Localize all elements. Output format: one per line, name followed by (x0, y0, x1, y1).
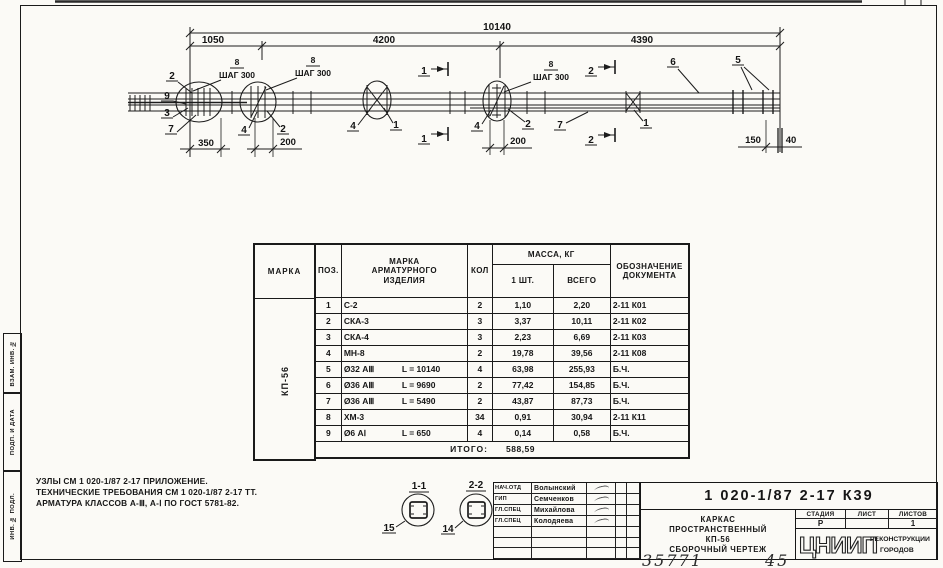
signature-empty-cell (616, 516, 627, 527)
stamp-label: ПОДП. И ДАТА (10, 409, 16, 455)
spec-cell-item: СКА-3 (341, 314, 467, 330)
spec-cell-doc: 2-11 К08 (610, 346, 689, 362)
spec-cell-doc: Б.Ч. (610, 378, 689, 394)
stamp-vzam-inv: ВЗАМ. ИНВ. № (3, 333, 22, 394)
signature-row (494, 538, 640, 549)
spec-cell-poz: 3 (315, 330, 341, 346)
table-row: 3СКА-432,236,692-11 К03 (315, 330, 689, 346)
spec-cell-mass-total: 39,56 (553, 346, 610, 362)
signature-name: Михайлова (532, 505, 587, 516)
table-row: 4МН-8219,7839,562-11 К08 (315, 346, 689, 362)
spec-cell-qty: 2 (467, 394, 492, 410)
item-length: L = 5490 (402, 396, 436, 406)
spec-cell-poz: 7 (315, 394, 341, 410)
item-length: L = 9690 (402, 380, 436, 390)
spec-cell-poz: 8 (315, 410, 341, 426)
signature-row (494, 527, 640, 538)
spec-cell-qty: 2 (467, 346, 492, 362)
spec-cell-mass-total: 87,73 (553, 394, 610, 410)
item-length: L = 10140 (402, 364, 440, 374)
specification-table: ПОЗ. МАРКА АРМАТУРНОГО ИЗДЕЛИЯ КОЛ МАССА… (314, 243, 690, 459)
spec-header-total: ВСЕГО (553, 265, 610, 298)
table-row: 2СКА-333,3710,112-11 К02 (315, 314, 689, 330)
signature-role: НАЧ.ОТД (494, 483, 532, 494)
spec-cell-item: Ø36 АⅢL = 9690 (341, 378, 467, 394)
spec-cell-poz: 2 (315, 314, 341, 330)
spec-cell-poz: 6 (315, 378, 341, 394)
signature-empty-cell (627, 527, 640, 538)
signature-empty-cell (627, 548, 640, 559)
signature-scribble (593, 506, 610, 516)
spec-header-mass: МАССА, КГ (492, 244, 610, 265)
signature-role (494, 538, 532, 549)
spec-cell-poz: 5 (315, 362, 341, 378)
spec-cell-item: Ø36 АⅢL = 5490 (341, 394, 467, 410)
spec-total-value: 588,59 (488, 445, 535, 455)
title-line: КАРКАС (700, 515, 735, 525)
organization-logo: ЦНИИП РЕКОНСТРУКЦИИ ГОРОДОВ (796, 529, 937, 559)
signature-empty-cell (616, 527, 627, 538)
spec-cell-mass-one: 0,91 (492, 410, 553, 426)
table-row: 8ХМ-3340,9130,942-11 К11 (315, 410, 689, 426)
spec-cell-mass-one: 77,42 (492, 378, 553, 394)
stage-value: Р (796, 519, 846, 528)
item-length: L = 650 (402, 428, 431, 438)
item-mark: МН-8 (344, 349, 402, 359)
signature-grid: НАЧ.ОТДВолынскийГИПСемченковГЛ.СПЕЦМихай… (494, 483, 641, 559)
spec-cell-mass-one: 1,10 (492, 298, 553, 314)
spec-cell-qty: 2 (467, 378, 492, 394)
stamp-label: ИНВ. № ПОДЛ. (10, 493, 16, 540)
handwritten-2: 45 (765, 551, 789, 568)
signature-name: Семченков (532, 494, 587, 505)
spec-marka-value: КП-56 (279, 366, 289, 396)
spec-cell-doc: 2-11 К02 (610, 314, 689, 330)
signature-row (494, 548, 640, 559)
table-row: 7Ø36 АⅢL = 5490243,8787,73Б.Ч. (315, 394, 689, 410)
document-number: 1 020-1/87 2-17 К39 (641, 483, 937, 510)
spec-cell-item: МН-8 (341, 346, 467, 362)
signature-empty-cell (627, 538, 640, 549)
signature-empty-cell (616, 494, 627, 505)
spec-cell-doc: Б.Ч. (610, 426, 689, 442)
title-line: ПРОСТРАНСТВЕННЫЙ (669, 525, 767, 535)
signature-role: ГЛ.СПЕЦ (494, 516, 532, 527)
signature-role (494, 548, 532, 559)
item-mark: С-2 (344, 301, 402, 311)
spec-cell-qty: 3 (467, 330, 492, 346)
stage-header: СТАДИЯ (796, 510, 846, 519)
spec-cell-poz: 4 (315, 346, 341, 362)
signature-scribble-cell (587, 527, 616, 538)
stamp-label: ВЗАМ. ИНВ. № (10, 340, 16, 387)
spec-cell-qty: 4 (467, 362, 492, 378)
spec-cell-mass-one: 0,14 (492, 426, 553, 442)
spec-cell-mass-one: 3,37 (492, 314, 553, 330)
signature-empty-cell (627, 516, 640, 527)
spec-cell-poz: 9 (315, 426, 341, 442)
signature-role: ГЛ.СПЕЦ (494, 505, 532, 516)
spec-cell-mass-one: 2,23 (492, 330, 553, 346)
spec-cell-doc: Б.Ч. (610, 362, 689, 378)
signature-scribble (593, 495, 610, 505)
stamp-podp-data: ПОДП. И ДАТА (3, 392, 22, 472)
table-row: 1С-221,102,202-11 К01 (315, 298, 689, 314)
signature-name: Волынский (532, 483, 587, 494)
spec-cell-qty: 3 (467, 314, 492, 330)
signature-scribble-cell (587, 538, 616, 549)
signature-scribble (593, 517, 610, 527)
signature-scribble-cell (587, 494, 616, 505)
note-line: УЗЛЫ СМ 1 020-1/87 2-17 ПРИЛОЖЕНИЕ. (36, 476, 257, 487)
spec-header-item: МАРКА АРМАТУРНОГО ИЗДЕЛИЯ (341, 244, 467, 298)
item-mark: Ø36 АⅢ (344, 381, 402, 391)
spec-total-cell: ИТОГО: 588,59 (315, 442, 689, 459)
signature-name (532, 538, 587, 549)
table-row: 5Ø32 АⅢL = 10140463,98255,93Б.Ч. (315, 362, 689, 378)
spec-cell-mass-one: 63,98 (492, 362, 553, 378)
spec-cell-mass-total: 255,93 (553, 362, 610, 378)
spec-total-row: ИТОГО: 588,59 (315, 442, 689, 459)
sheet-header: ЛИСТ (846, 510, 889, 519)
signature-row: ГЛ.СПЕЦКолодяева (494, 516, 640, 527)
org-name: ЦНИИП (799, 532, 877, 558)
table-row: 9Ø6 АⅠL = 65040,140,58Б.Ч. (315, 426, 689, 442)
org-sub2: ГОРОДОВ (880, 547, 914, 554)
sheets-header: ЛИСТОВ (889, 510, 937, 519)
signature-empty-cell (616, 505, 627, 516)
note-line: ТЕХНИЧЕСКИЕ ТРЕБОВАНИЯ СМ 1 020-1/87 2-1… (36, 487, 257, 498)
title-line: КП-56 (706, 535, 731, 545)
signature-scribble-cell (587, 548, 616, 559)
stamp-inv-podl: ИНВ. № ПОДЛ. (3, 470, 22, 562)
signature-empty-cell (627, 505, 640, 516)
sheets-value: 1 (889, 519, 937, 528)
spec-cell-poz: 1 (315, 298, 341, 314)
spec-header-poz: ПОЗ. (315, 244, 341, 298)
spec-header-qty: КОЛ (467, 244, 492, 298)
spec-cell-mass-total: 6,69 (553, 330, 610, 346)
signature-row: НАЧ.ОТДВолынский (494, 483, 640, 494)
spec-total-label: ИТОГО: (318, 445, 488, 455)
signature-role: ГИП (494, 494, 532, 505)
spec-cell-mass-total: 2,20 (553, 298, 610, 314)
spec-cell-mass-total: 154,85 (553, 378, 610, 394)
spec-cell-mass-total: 30,94 (553, 410, 610, 426)
spec-cell-doc: 2-11 К01 (610, 298, 689, 314)
signature-scribble-cell (587, 483, 616, 494)
spec-cell-item: СКА-4 (341, 330, 467, 346)
spec-marka-value-wrap: КП-56 (255, 299, 314, 462)
handwritten-1: 35771 (642, 551, 703, 568)
signature-scribble-cell (587, 516, 616, 527)
signature-empty-cell (616, 538, 627, 549)
item-mark: Ø6 АⅠ (344, 429, 402, 439)
item-mark: Ø36 АⅢ (344, 397, 402, 407)
table-row: 6Ø36 АⅢL = 9690277,42154,85Б.Ч. (315, 378, 689, 394)
spec-header-doc: ОБОЗНАЧЕНИЕ ДОКУМЕНТА (610, 244, 689, 298)
signature-empty-cell (616, 548, 627, 559)
spec-cell-doc: 2-11 К03 (610, 330, 689, 346)
signature-role (494, 527, 532, 538)
spec-header-one: 1 ШТ. (492, 265, 553, 298)
signature-name: Колодяева (532, 516, 587, 527)
general-notes: УЗЛЫ СМ 1 020-1/87 2-17 ПРИЛОЖЕНИЕ. ТЕХН… (36, 476, 257, 509)
sheet-value (846, 519, 889, 528)
spec-cell-doc: Б.Ч. (610, 394, 689, 410)
item-mark: Ø32 АⅢ (344, 365, 402, 375)
signature-empty-cell (627, 483, 640, 494)
signature-scribble-cell (587, 505, 616, 516)
spec-cell-qty: 4 (467, 426, 492, 442)
spec-cell-item: С-2 (341, 298, 467, 314)
spec-cell-item: ХМ-3 (341, 410, 467, 426)
item-mark: ХМ-3 (344, 413, 402, 423)
spec-header-marka: МАРКА (255, 245, 314, 299)
spec-cell-qty: 2 (467, 298, 492, 314)
item-mark: СКА-3 (344, 317, 402, 327)
spec-cell-item: Ø6 АⅠL = 650 (341, 426, 467, 442)
title-block: НАЧ.ОТДВолынскийГИПСемченковГЛ.СПЕЦМихай… (493, 482, 938, 560)
signature-name (532, 548, 587, 559)
item-mark: СКА-4 (344, 333, 402, 343)
spec-marka-column: МАРКА КП-56 (253, 243, 316, 461)
signature-name (532, 527, 587, 538)
handwritten-archive-number: 35771 45 (642, 551, 789, 568)
signature-empty-cell (627, 494, 640, 505)
spec-cell-mass-total: 0,58 (553, 426, 610, 442)
signature-empty-cell (616, 483, 627, 494)
spec-cell-doc: 2-11 К11 (610, 410, 689, 426)
org-sub1: РЕКОНСТРУКЦИИ (870, 536, 930, 543)
note-line: АРМАТУРА КЛАССОВ А-Ⅲ, А-Ⅰ ПО ГОСТ 5781-8… (36, 498, 257, 509)
spec-cell-mass-one: 19,78 (492, 346, 553, 362)
spec-cell-mass-total: 10,11 (553, 314, 610, 330)
spec-cell-item: Ø32 АⅢL = 10140 (341, 362, 467, 378)
signature-row: ГИПСемченков (494, 494, 640, 505)
blueprint-sheet: ВЗАМ. ИНВ. № ПОДП. И ДАТА ИНВ. № ПОДЛ. (0, 0, 943, 568)
signature-row: ГЛ.СПЕЦМихайлова (494, 505, 640, 516)
stage-sheet-strip: СТАДИЯ ЛИСТ ЛИСТОВ Р 1 (796, 510, 937, 529)
signature-scribble (593, 484, 610, 494)
spec-cell-qty: 34 (467, 410, 492, 426)
spec-cell-mass-one: 43,87 (492, 394, 553, 410)
